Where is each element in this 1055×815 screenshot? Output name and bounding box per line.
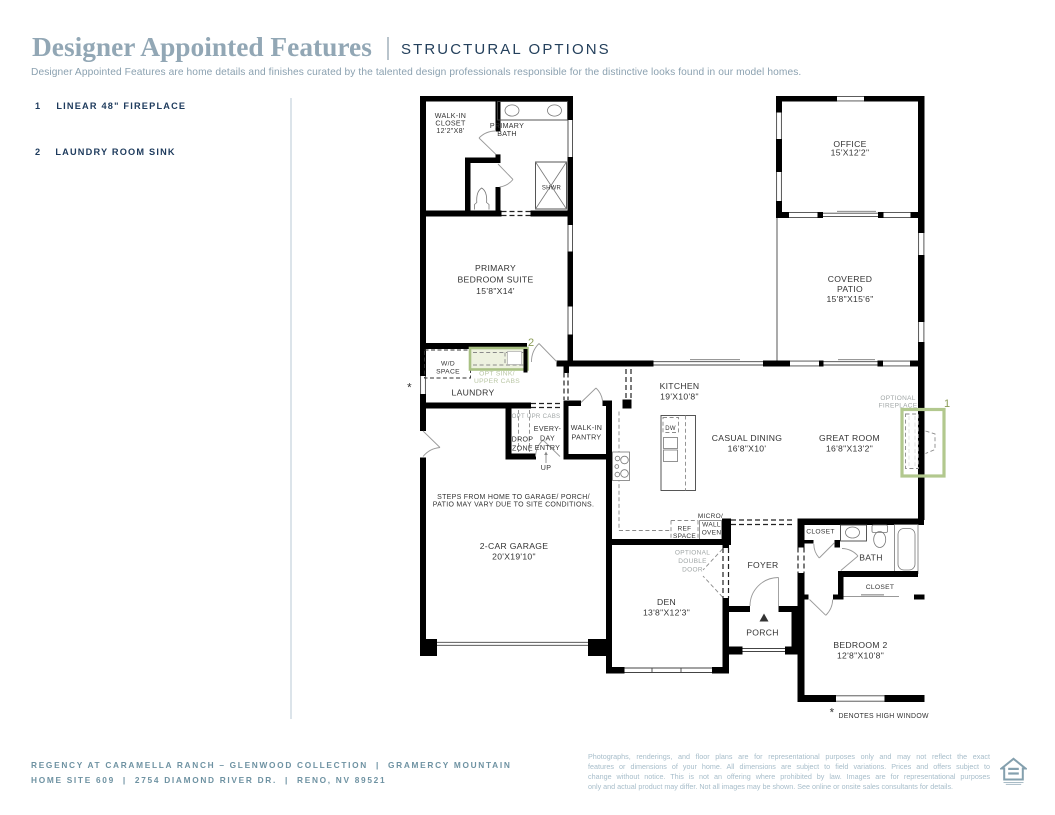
svg-text:DW: DW bbox=[665, 426, 676, 432]
svg-text:15'X12'2": 15'X12'2" bbox=[831, 148, 870, 158]
svg-text:*: * bbox=[407, 383, 412, 395]
svg-text:WALK-IN: WALK-IN bbox=[571, 424, 602, 432]
svg-text:DOUBLE: DOUBLE bbox=[678, 558, 707, 565]
svg-text:15'8"X14': 15'8"X14' bbox=[476, 286, 515, 296]
svg-text:PRIMARY: PRIMARY bbox=[490, 122, 524, 130]
svg-text:15'8"X15'6": 15'8"X15'6" bbox=[826, 294, 873, 304]
svg-text:REF: REF bbox=[678, 526, 692, 533]
svg-text:DAY: DAY bbox=[540, 435, 555, 443]
svg-text:COVERED: COVERED bbox=[828, 274, 873, 284]
svg-text:OPT UPR CABS: OPT UPR CABS bbox=[512, 413, 561, 420]
svg-text:*: * bbox=[830, 708, 835, 720]
svg-text:DOOR: DOOR bbox=[682, 567, 703, 574]
svg-text:UP: UP bbox=[541, 464, 551, 472]
svg-text:MICRO/: MICRO/ bbox=[698, 513, 723, 520]
svg-text:SHWR: SHWR bbox=[542, 186, 562, 192]
svg-text:LAUNDRY: LAUNDRY bbox=[451, 388, 494, 398]
svg-text:W/D: W/D bbox=[441, 361, 455, 368]
svg-text:UPPER CABS: UPPER CABS bbox=[474, 378, 520, 385]
svg-text:FOYER: FOYER bbox=[747, 560, 778, 570]
svg-text:PATIO: PATIO bbox=[837, 284, 863, 294]
svg-text:DROP: DROP bbox=[512, 436, 534, 444]
svg-text:PANTRY: PANTRY bbox=[572, 434, 602, 442]
svg-text:BATH: BATH bbox=[497, 130, 517, 138]
svg-text:2-CAR GARAGE: 2-CAR GARAGE bbox=[480, 541, 549, 551]
svg-text:GREAT ROOM: GREAT ROOM bbox=[819, 433, 880, 443]
svg-text:2: 2 bbox=[528, 337, 534, 349]
svg-text:ENTRY: ENTRY bbox=[535, 444, 560, 452]
svg-text:16'8"X13'2": 16'8"X13'2" bbox=[826, 444, 873, 454]
svg-text:KITCHEN: KITCHEN bbox=[660, 381, 700, 391]
svg-text:BATH: BATH bbox=[859, 553, 882, 563]
svg-text:OVEN: OVEN bbox=[702, 530, 722, 537]
svg-text:CASUAL DINING: CASUAL DINING bbox=[712, 433, 782, 443]
svg-text:DENOTES HIGH WINDOW: DENOTES HIGH WINDOW bbox=[839, 713, 929, 720]
svg-text:PORCH: PORCH bbox=[746, 628, 779, 638]
svg-text:12'8"X10'8": 12'8"X10'8" bbox=[837, 651, 884, 661]
svg-text:SPACE: SPACE bbox=[673, 533, 696, 540]
svg-text:19'X10'8": 19'X10'8" bbox=[660, 392, 699, 402]
svg-text:CLOSET: CLOSET bbox=[806, 529, 835, 536]
svg-text:STEPS FROM HOME TO GARAGE/ POR: STEPS FROM HOME TO GARAGE/ PORCH/ bbox=[437, 494, 590, 501]
svg-text:PATIO MAY VARY DUE TO SITE CON: PATIO MAY VARY DUE TO SITE CONDITIONS. bbox=[433, 502, 595, 509]
svg-text:OPTIONAL: OPTIONAL bbox=[675, 550, 710, 557]
svg-text:20'X19'10": 20'X19'10" bbox=[492, 552, 536, 562]
svg-text:16'8"X10': 16'8"X10' bbox=[728, 444, 767, 454]
svg-text:BEDROOM SUITE: BEDROOM SUITE bbox=[458, 275, 534, 285]
svg-text:PRIMARY: PRIMARY bbox=[475, 263, 516, 273]
svg-text:13'8"X12'3": 13'8"X12'3" bbox=[643, 608, 690, 618]
svg-text:12'2"X8': 12'2"X8' bbox=[436, 127, 464, 135]
svg-text:DEN: DEN bbox=[657, 597, 676, 607]
svg-text:OPT SINK/: OPT SINK/ bbox=[479, 371, 515, 378]
svg-text:OPTIONAL: OPTIONAL bbox=[880, 395, 915, 402]
svg-text:WALL: WALL bbox=[702, 522, 721, 529]
svg-text:BEDROOM 2: BEDROOM 2 bbox=[833, 640, 887, 650]
svg-text:EVERY-: EVERY- bbox=[534, 425, 562, 433]
svg-text:SPACE: SPACE bbox=[436, 369, 460, 376]
svg-text:ZONE: ZONE bbox=[512, 445, 533, 453]
svg-text:CLOSET: CLOSET bbox=[866, 584, 895, 591]
